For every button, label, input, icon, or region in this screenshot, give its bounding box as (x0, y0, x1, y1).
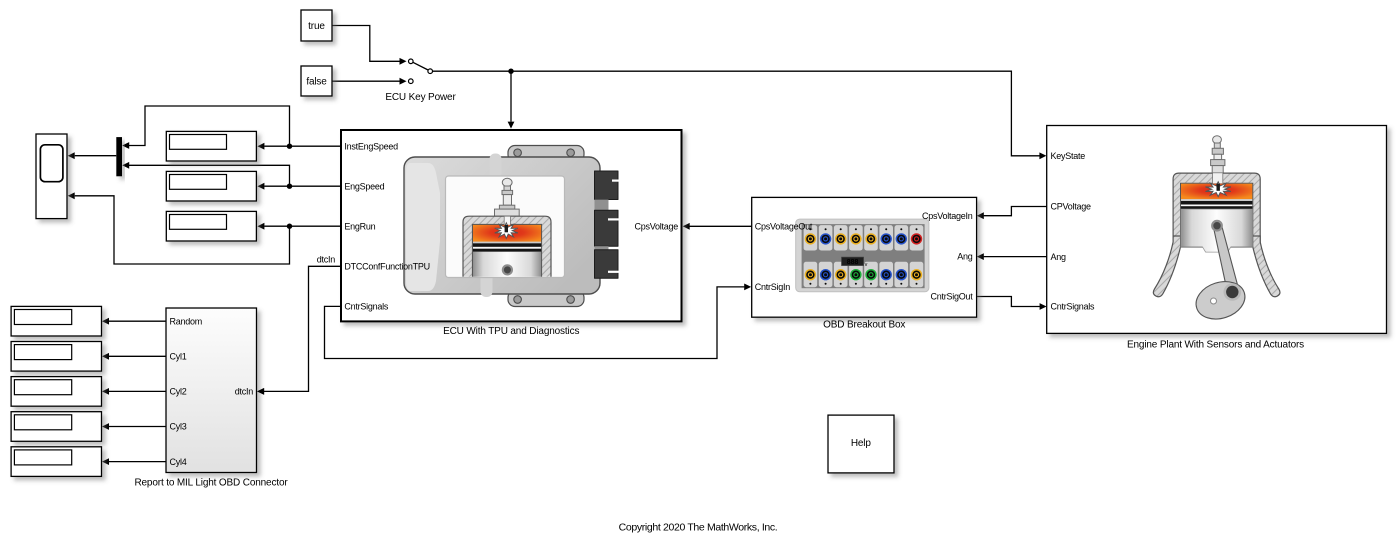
svg-text:Ang: Ang (1051, 252, 1067, 262)
svg-text:EngRun: EngRun (344, 221, 375, 231)
svg-text:false: false (306, 77, 327, 88)
svg-text:Cyl3: Cyl3 (170, 422, 187, 432)
svg-text:dtcIn: dtcIn (317, 255, 336, 265)
svg-text:CpsVoltage: CpsVoltage (634, 222, 678, 232)
svg-text:CntrSigIn: CntrSigIn (755, 282, 791, 292)
svg-text:KeyState: KeyState (1051, 151, 1086, 161)
svg-text:InstEngSpeed: InstEngSpeed (344, 141, 398, 151)
svg-text:EngSpeed: EngSpeed (344, 181, 384, 191)
svg-text:CpsVoltageIn: CpsVoltageIn (922, 211, 973, 221)
svg-text:CntrSignals: CntrSignals (1051, 302, 1096, 312)
svg-text:Random: Random (170, 316, 203, 326)
svg-text:Cyl4: Cyl4 (170, 457, 187, 467)
svg-text:Help: Help (851, 438, 872, 449)
svg-text:CpsVoltageOut: CpsVoltageOut (755, 221, 813, 231)
svg-text:v: v (865, 262, 868, 268)
svg-text:ECU With TPU and Diagnostics: ECU With TPU and Diagnostics (443, 326, 579, 337)
svg-text:DTCConfFunctionTPU: DTCConfFunctionTPU (344, 262, 430, 272)
svg-text:CntrSignals: CntrSignals (344, 302, 389, 312)
svg-text:Copyright 2020 The MathWorks,: Copyright 2020 The MathWorks, Inc. (619, 522, 778, 534)
svg-text:Cyl2: Cyl2 (170, 387, 187, 397)
svg-text:Engine Plant With Sensors and: Engine Plant With Sensors and Actuators (1127, 340, 1304, 351)
svg-text:888: 888 (847, 259, 859, 266)
svg-text:true: true (308, 21, 325, 32)
svg-text:Report to MIL Light OBD Connec: Report to MIL Light OBD Connector (134, 478, 288, 489)
svg-text:OBD Breakout Box: OBD Breakout Box (823, 320, 905, 331)
svg-text:Ang: Ang (957, 252, 973, 262)
svg-text:dtcIn: dtcIn (235, 386, 254, 396)
svg-text:ECU Key Power: ECU Key Power (385, 92, 456, 103)
svg-text:Cyl1: Cyl1 (170, 352, 187, 362)
svg-text:CPVoltage: CPVoltage (1051, 202, 1092, 212)
svg-text:CntrSigOut: CntrSigOut (930, 292, 973, 302)
